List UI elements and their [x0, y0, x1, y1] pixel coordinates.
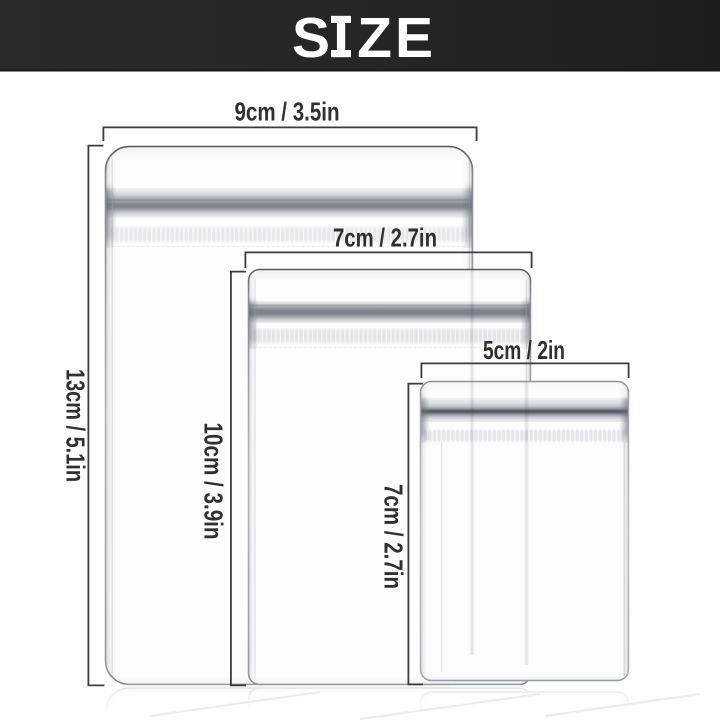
svg-text:Z: Z — [357, 6, 392, 70]
svg-text:S: S — [292, 6, 330, 70]
svg-text:5cm / 2in: 5cm / 2in — [483, 335, 565, 365]
svg-text:10cm / 3.9in: 10cm / 3.9in — [199, 423, 229, 540]
svg-text:7cm / 2.7in: 7cm / 2.7in — [333, 223, 437, 253]
svg-text:7cm / 2.7in: 7cm / 2.7in — [379, 484, 409, 589]
svg-text:I: I — [333, 6, 349, 70]
svg-text:9cm / 3.5in: 9cm / 3.5in — [235, 97, 340, 127]
svg-text:13cm / 5.1in: 13cm / 5.1in — [61, 369, 91, 482]
svg-text:E: E — [395, 6, 433, 70]
